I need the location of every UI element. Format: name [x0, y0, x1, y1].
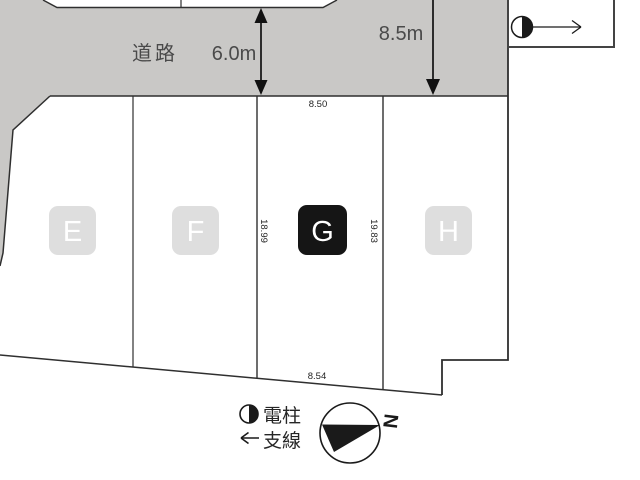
road-width-label: 6.0m [212, 43, 256, 65]
side-width-label: 8.5m [379, 23, 423, 45]
upper-lot [43, 0, 337, 8]
legend-guy-label: 支線 [263, 430, 301, 452]
legend-pole-label: 電柱 [263, 405, 301, 427]
utility-pole-icon [512, 17, 533, 38]
dim-bottom: 8.54 [308, 371, 327, 382]
compass: N [320, 403, 402, 463]
lot-chip-h[interactable]: H [425, 206, 472, 255]
dim-right: 19.83 [368, 219, 379, 243]
road-label: 道路 [132, 42, 178, 65]
lot-label-f: F [187, 216, 205, 248]
lot-chip-e[interactable]: E [49, 206, 96, 255]
legend-guy-icon [241, 433, 259, 444]
lot-chip-g[interactable]: G [298, 205, 347, 255]
lot-label-e: E [63, 216, 82, 248]
lot-label-h: H [438, 216, 459, 248]
legend-pole-icon [240, 405, 258, 423]
dim-left: 18.99 [258, 219, 269, 243]
plan-canvas: 道路 6.0m 8.5m E F G H [0, 0, 640, 480]
compass-north-label: N [378, 412, 402, 429]
utility-pole-box [508, 0, 614, 47]
legend: 電柱 支線 [240, 405, 301, 452]
lot-plan-diagram: 道路 6.0m 8.5m E F G H [0, 0, 640, 480]
lot-chip-f[interactable]: F [172, 206, 219, 255]
dim-top: 8.50 [309, 99, 328, 110]
lot-label-g: G [311, 216, 334, 248]
